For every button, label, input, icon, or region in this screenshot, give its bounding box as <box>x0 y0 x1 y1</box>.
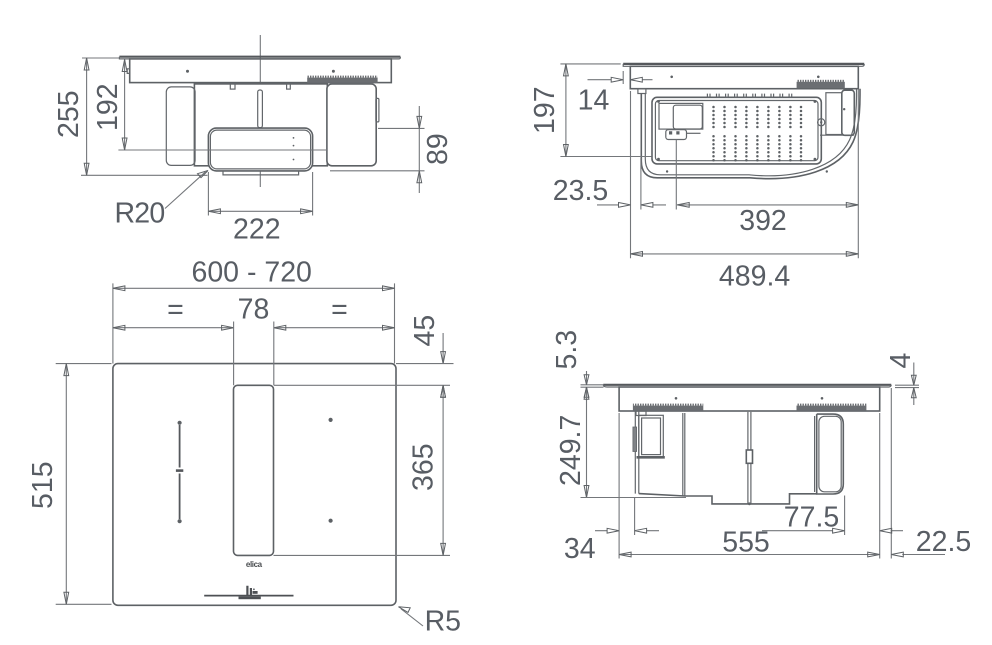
svg-text:197: 197 <box>529 86 561 134</box>
svg-text:elica: elica <box>246 560 263 569</box>
svg-text:23.5: 23.5 <box>553 175 608 207</box>
svg-text:5.3: 5.3 <box>551 330 583 370</box>
svg-text:600 - 720: 600 - 720 <box>191 257 311 289</box>
svg-text:R5: R5 <box>425 606 461 638</box>
svg-text:489.4: 489.4 <box>719 260 790 292</box>
svg-text:22.5: 22.5 <box>916 526 971 558</box>
svg-text:249.7: 249.7 <box>555 415 587 486</box>
svg-text:R20: R20 <box>115 198 165 230</box>
svg-text:192: 192 <box>92 83 124 131</box>
svg-text:45: 45 <box>409 315 441 347</box>
svg-text:392: 392 <box>739 205 787 237</box>
svg-text:=: = <box>331 294 348 326</box>
svg-text:255: 255 <box>53 90 85 138</box>
svg-text:89: 89 <box>422 133 454 165</box>
svg-text:365: 365 <box>408 443 440 491</box>
svg-text:515: 515 <box>27 461 59 509</box>
svg-text:=: = <box>167 294 184 326</box>
svg-text:555: 555 <box>722 526 770 558</box>
svg-text:77.5: 77.5 <box>784 501 839 533</box>
svg-text:78: 78 <box>238 293 270 325</box>
svg-text:14: 14 <box>578 84 610 116</box>
svg-text:4: 4 <box>885 353 917 369</box>
svg-text:222: 222 <box>233 214 281 246</box>
svg-text:34: 34 <box>564 533 596 565</box>
